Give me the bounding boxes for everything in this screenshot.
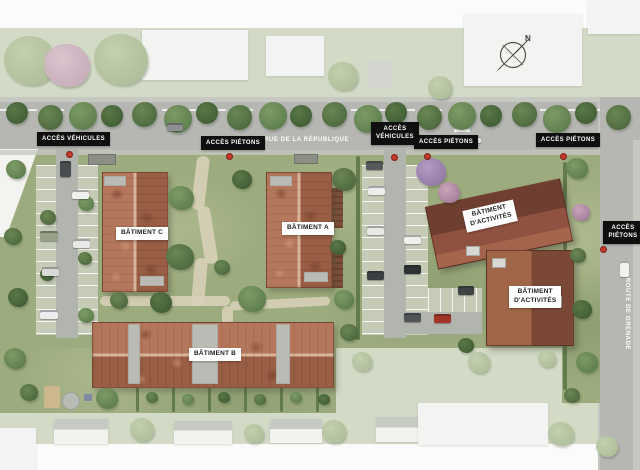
tree xyxy=(468,352,490,373)
compass-north-letter: N xyxy=(525,34,531,43)
rooftop-unit xyxy=(466,246,480,256)
building-c-label: BÂTIMENT C xyxy=(116,227,168,240)
tree xyxy=(150,292,172,313)
garden-hedge xyxy=(280,386,283,412)
access-label-line: PIÉTONS xyxy=(608,232,638,240)
car xyxy=(367,226,384,235)
tree xyxy=(416,158,446,186)
tree xyxy=(6,160,26,179)
car xyxy=(60,161,71,177)
compass-north-icon: N xyxy=(490,32,536,78)
tree xyxy=(238,286,266,312)
tree xyxy=(332,168,356,191)
tree xyxy=(548,422,574,446)
access-pin xyxy=(560,153,567,160)
access-label-line: VÉHICULES xyxy=(376,133,414,141)
tree xyxy=(318,394,330,405)
tree xyxy=(572,300,592,319)
access-pedestrians-west-label: ACCÈS PIÉTONS xyxy=(201,136,265,150)
tree xyxy=(352,352,372,371)
bike-shelter xyxy=(294,154,318,164)
neighbor-building xyxy=(588,0,640,34)
car xyxy=(458,286,474,295)
access-pedestrians-east-label: ACCÈS PIÉTONS xyxy=(536,133,600,147)
street-tree xyxy=(196,102,218,124)
petanque-circle xyxy=(62,392,80,410)
main-road-name: RUE DE LA RÉPUBLIQUE xyxy=(264,137,349,143)
car xyxy=(167,123,183,131)
car xyxy=(404,313,421,322)
side-road-sidewalk xyxy=(633,140,640,470)
rooftop-unit xyxy=(492,258,506,268)
garden-hedge xyxy=(172,386,175,412)
building-b-label: BÂTIMENT B xyxy=(189,348,241,361)
main-road-sidewalk xyxy=(0,97,640,102)
neighbor-building xyxy=(418,403,548,445)
car xyxy=(40,231,58,241)
car xyxy=(434,314,451,323)
hedge xyxy=(356,156,360,340)
tree xyxy=(130,418,154,441)
access-label-line: ACCÈS xyxy=(608,224,638,232)
garden-hedge xyxy=(136,386,139,412)
car xyxy=(404,265,421,274)
tree xyxy=(244,424,264,443)
tree xyxy=(340,324,358,341)
south-white-band xyxy=(0,444,640,470)
tree xyxy=(110,292,128,309)
stairwell-band xyxy=(140,276,164,286)
neighbor-building xyxy=(266,36,324,76)
tree xyxy=(78,308,94,323)
tree xyxy=(96,388,118,409)
activity-building-south-label: BÂTIMENT D'ACTIVITÉS xyxy=(509,286,561,308)
neighbor-building xyxy=(54,419,108,444)
car xyxy=(404,235,421,244)
tree xyxy=(168,186,194,210)
playground-item xyxy=(84,394,92,401)
tree xyxy=(330,240,346,255)
car xyxy=(42,267,59,276)
tree xyxy=(576,352,598,373)
tree xyxy=(438,182,460,203)
playground-structure xyxy=(44,386,60,408)
tree xyxy=(328,62,358,90)
tree xyxy=(334,290,354,309)
tree xyxy=(254,394,266,405)
bike-shelter xyxy=(88,154,116,165)
stairwell-band xyxy=(128,324,140,384)
tree xyxy=(182,394,194,405)
stairwell-band xyxy=(270,176,292,186)
car xyxy=(40,310,58,319)
car xyxy=(73,239,90,248)
street-tree xyxy=(38,105,63,130)
access-pin xyxy=(66,151,73,158)
street-tree xyxy=(101,105,123,127)
tree xyxy=(20,384,38,401)
neighbor-building xyxy=(270,419,322,443)
tree xyxy=(596,436,618,457)
street-tree xyxy=(259,102,287,130)
access-pin xyxy=(600,246,607,253)
stairwell-band xyxy=(276,324,290,384)
street-tree xyxy=(512,102,537,127)
site-plan: RUE DE LA RÉPUBLIQUE ROUTE DE GRENADE xyxy=(0,0,640,470)
stairwell-band xyxy=(304,272,328,282)
street-tree xyxy=(417,105,442,130)
garden-hedge xyxy=(244,386,247,412)
access-pin xyxy=(391,154,398,161)
car xyxy=(366,161,383,170)
stairwell-band xyxy=(104,176,126,186)
neighbor-building xyxy=(142,30,248,80)
building-a-label: BÂTIMENT A xyxy=(282,222,334,235)
access-pedestrians-center-label: ACCÈS PIÉTONS xyxy=(414,135,478,149)
east-parking-stalls xyxy=(406,165,428,335)
car xyxy=(72,190,89,199)
car xyxy=(368,186,385,195)
building-label-line: BÂTIMENT xyxy=(514,288,556,297)
neighbor-building xyxy=(376,417,420,442)
tree xyxy=(94,34,148,85)
tree xyxy=(322,420,346,443)
tree xyxy=(232,170,252,189)
car xyxy=(367,271,384,280)
tree xyxy=(538,350,556,367)
east-parking-driveway xyxy=(384,140,406,338)
tree xyxy=(570,248,586,263)
tree xyxy=(40,210,56,225)
access-vehicles-center-label: ACCÈS VÉHICULES xyxy=(371,122,419,145)
tree xyxy=(572,204,590,221)
access-pedestrians-side-road-label: ACCÈS PIÉTONS xyxy=(603,221,640,244)
tree xyxy=(78,252,92,265)
neighbor-building xyxy=(0,428,36,470)
tree xyxy=(146,392,158,403)
tree xyxy=(428,76,452,99)
street-tree xyxy=(575,102,597,124)
tree xyxy=(214,260,230,275)
access-label-line: ACCÈS xyxy=(376,125,414,133)
tree xyxy=(566,158,588,179)
garden-hedge xyxy=(208,386,211,412)
tree xyxy=(166,244,194,270)
neighbor-building xyxy=(174,421,232,444)
access-vehicles-west-label: ACCÈS VÉHICULES xyxy=(37,132,110,146)
tree xyxy=(564,388,580,403)
access-pin xyxy=(226,153,233,160)
tree xyxy=(218,392,230,403)
side-road-name: ROUTE DE GRENADE xyxy=(624,264,630,364)
neighbor-building xyxy=(368,60,392,88)
building-label-line: D'ACTIVITÉS xyxy=(514,297,556,306)
tree xyxy=(4,348,26,369)
tree xyxy=(4,228,22,245)
tree xyxy=(290,392,302,403)
access-pin xyxy=(424,153,431,160)
tree xyxy=(458,338,474,353)
tree xyxy=(8,288,28,307)
tree xyxy=(44,44,90,87)
